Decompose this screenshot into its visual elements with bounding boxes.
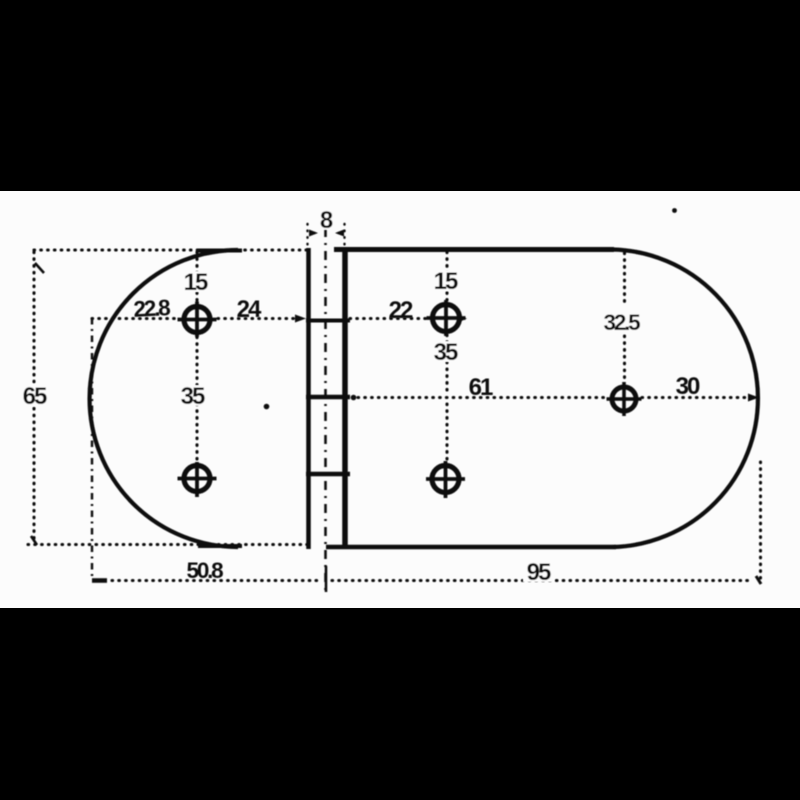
svg-text:22.8: 22.8 xyxy=(133,295,171,322)
svg-text:61: 61 xyxy=(469,374,493,401)
svg-text:15: 15 xyxy=(434,268,458,295)
svg-text:30: 30 xyxy=(676,373,700,400)
svg-text:65: 65 xyxy=(23,383,47,410)
svg-text:24: 24 xyxy=(237,296,262,323)
svg-text:50.8: 50.8 xyxy=(187,558,224,583)
svg-text:35: 35 xyxy=(181,383,205,410)
svg-text:8: 8 xyxy=(320,207,333,234)
svg-text:32.5: 32.5 xyxy=(604,310,641,335)
svg-text:95: 95 xyxy=(527,559,551,586)
svg-text:22: 22 xyxy=(389,297,413,324)
svg-text:35: 35 xyxy=(434,339,458,366)
svg-text:15: 15 xyxy=(184,269,208,296)
